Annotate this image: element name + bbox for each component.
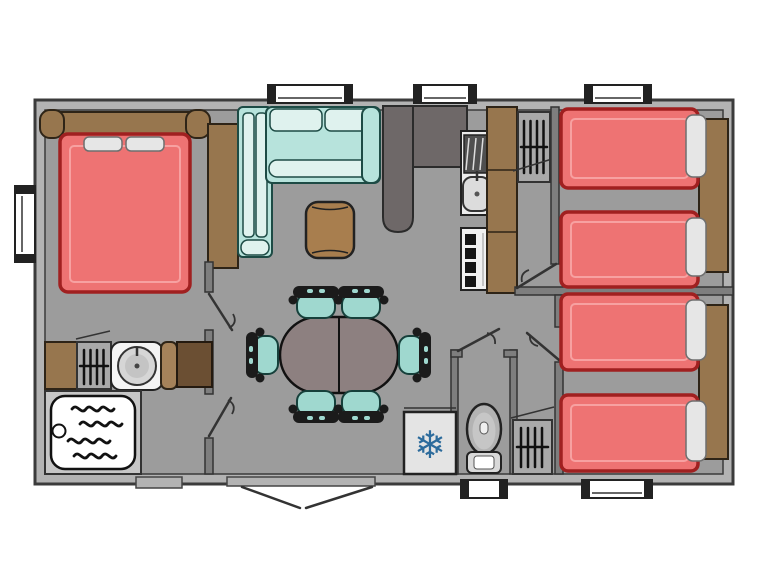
toilet (467, 404, 501, 473)
pillow (126, 137, 164, 151)
barrel-ottoman (306, 202, 354, 258)
window-top-3 (585, 85, 651, 103)
snowflake-icon: ❄ (414, 423, 446, 467)
towel-rail-cabinet (77, 342, 111, 389)
single-bed-4 (561, 395, 706, 471)
pillow (84, 137, 122, 151)
fridge-freezer: ❄ (404, 408, 456, 474)
bed-post-left (40, 110, 64, 138)
counter-curve (161, 342, 177, 389)
window-bottom-1 (461, 480, 507, 498)
window-bottom-2 (582, 480, 652, 498)
window-left (15, 186, 35, 262)
bathroom-cabinet-right (177, 342, 212, 387)
single-bed-2 (561, 212, 706, 287)
entrance-door-leaf-right (306, 487, 372, 508)
bathroom-cabinet-left (45, 342, 77, 389)
wc (467, 404, 501, 473)
pillow (686, 115, 706, 177)
window-top-2 (414, 85, 476, 103)
window-top-1 (268, 85, 352, 103)
pillow (686, 218, 706, 276)
wardrobe (208, 124, 238, 268)
pillow (686, 300, 706, 360)
entrance-door-leaf-left (242, 487, 300, 508)
kitchen-partition (383, 106, 413, 232)
wall-kitchen-bedroom (551, 107, 559, 264)
vent-cabinet (518, 112, 550, 182)
floor-plan-page: ❄ (0, 0, 759, 571)
floor-plan: ❄ (0, 0, 759, 571)
single-bed-3 (561, 294, 706, 370)
kitchen-dark-counter (413, 106, 467, 167)
double-bed (60, 134, 190, 292)
entrance-double-door (227, 477, 375, 508)
shower-drain (53, 425, 66, 438)
washbasin (111, 342, 163, 390)
bed-post-right (186, 110, 210, 138)
kitchen-worktop (487, 107, 517, 293)
bottom-step (136, 477, 182, 488)
shower (45, 391, 141, 474)
single-bed-1 (561, 109, 706, 188)
dining-table (280, 317, 398, 393)
pillow (686, 401, 706, 461)
